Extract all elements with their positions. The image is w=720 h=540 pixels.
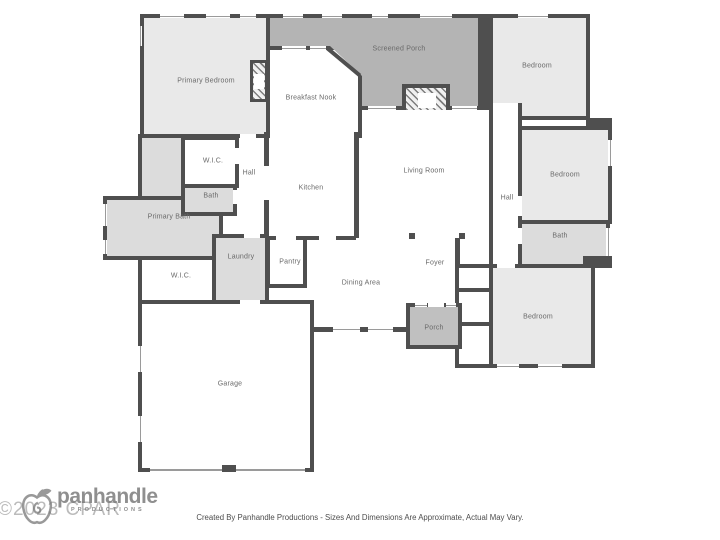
foyer-wall [455,238,460,268]
kitchen-wall [336,236,356,240]
dining-wall [313,327,333,332]
door-opening [240,134,256,138]
room-bath-upper [181,184,237,216]
door-opening [428,303,444,307]
window [606,228,610,256]
wall [586,118,612,130]
room-label-living-room: Living Room [403,168,444,175]
door-opening [518,196,522,216]
fireplace-opening [254,74,264,89]
window [333,327,360,332]
room-label-bath-right: Bath [552,233,567,240]
window [497,364,519,368]
window [310,46,326,50]
door-opening [235,148,239,164]
window [368,106,396,110]
room-label-laundry: Laundry [228,254,255,261]
window [420,14,452,18]
room-label-kitchen: Kitchen [299,185,324,192]
window [415,303,427,307]
window [538,364,562,368]
wall [583,256,612,268]
dining-wall [393,327,410,332]
copyright-watermark: ©2023 CPAR [0,499,121,521]
window [103,240,107,254]
room-label-garage: Garage [218,381,243,388]
dining-wall [360,327,368,332]
fireplace [250,60,268,102]
door-opening [233,190,237,204]
room-label-pantry: Pantry [279,259,300,266]
window [160,14,184,18]
door-opening [276,236,296,240]
room-label-wic-upper: W.I.C. [203,158,223,165]
garage-door-post [222,465,236,472]
room-label-bath-upper: Bath [203,193,218,200]
fireplace [402,84,450,110]
room-label-screened-porch: Screened Porch [373,46,426,53]
room-label-hall-right: Hall [501,195,514,202]
fireplace-opening [418,93,436,108]
column [459,233,465,239]
floor-plan-page: Primary Bedroom Breakfast Nook Screened … [0,0,720,540]
closet-shelf-wall [455,288,493,292]
window [368,327,393,332]
room-label-foyer: Foyer [426,260,445,267]
room-label-primary-bedroom: Primary Bedroom [177,78,234,85]
wall [478,14,491,110]
room-label-bedroom-right: Bedroom [550,172,580,179]
room-label-bedroom-top-right: Bedroom [522,63,552,70]
window [240,14,256,18]
window [283,14,303,18]
room-label-bedroom-bottom-right: Bedroom [523,314,553,321]
window [372,14,388,18]
kitchen-wall [305,236,319,240]
room-label-hall-left: Hall [243,170,256,177]
window [518,14,548,18]
window [138,26,142,46]
window [282,46,306,50]
window [322,14,342,18]
window [206,14,230,18]
window [446,303,456,307]
door-opening [497,264,515,268]
room-label-primary-bath: Primary Bath [148,214,191,221]
kitchen-wall [354,132,359,238]
kitchen-wall [264,132,269,166]
room-label-breakfast-nook: Breakfast Nook [286,95,337,102]
window [138,416,142,442]
room-label-porch: Porch [424,325,443,332]
door-opening [240,300,260,304]
room-label-wic-lower: W.I.C. [171,273,191,280]
window [138,346,142,372]
window [452,106,477,110]
room-label-dining-area: Dining Area [342,280,380,287]
door-opening [518,228,522,244]
window [103,204,107,226]
door-opening [244,234,260,238]
kitchen-wall [264,200,269,236]
window [608,140,612,166]
column [409,233,415,239]
room-laundry [212,234,269,304]
